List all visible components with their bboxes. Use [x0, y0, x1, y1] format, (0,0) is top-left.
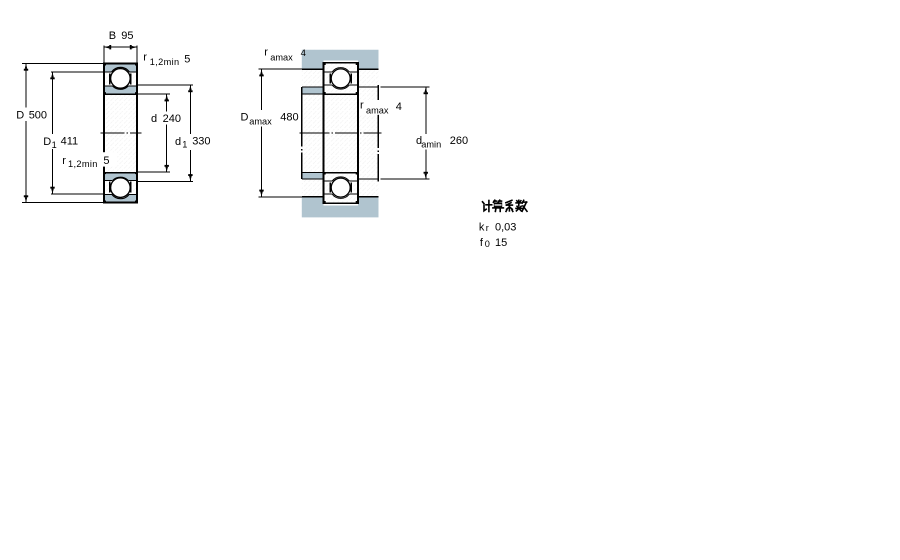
svg-text:amax: amax [270, 53, 293, 63]
svg-text:D: D [43, 136, 51, 148]
svg-text:r: r [264, 47, 268, 59]
svg-text:330: 330 [192, 136, 210, 148]
svg-text:amax: amax [249, 116, 272, 126]
svg-text:0: 0 [485, 239, 490, 249]
svg-text:B: B [109, 30, 116, 42]
svg-text:r: r [486, 223, 489, 233]
svg-text:d: d [151, 113, 157, 125]
svg-text:1,2min: 1,2min [68, 159, 98, 169]
svg-text:480: 480 [280, 111, 298, 123]
svg-text:r: r [360, 100, 364, 112]
svg-text:95: 95 [121, 30, 133, 42]
svg-text:5: 5 [103, 155, 109, 167]
svg-text:240: 240 [163, 113, 181, 125]
svg-text:D: D [16, 110, 24, 122]
svg-text:1: 1 [52, 140, 57, 150]
svg-text:4: 4 [396, 101, 402, 113]
svg-text:4: 4 [301, 48, 306, 59]
svg-text:1: 1 [182, 140, 187, 150]
svg-text:0,03: 0,03 [495, 222, 516, 234]
svg-text:k: k [479, 221, 485, 233]
svg-text:amin: amin [421, 140, 441, 150]
svg-text:amax: amax [366, 106, 389, 116]
svg-text:r: r [143, 52, 147, 64]
svg-text:260: 260 [450, 135, 468, 147]
svg-text:r: r [62, 155, 66, 167]
svg-text:411: 411 [61, 136, 79, 148]
svg-text:D: D [241, 112, 249, 124]
svg-text:500: 500 [29, 110, 47, 122]
svg-text:5: 5 [184, 53, 190, 65]
svg-text:1,2min: 1,2min [150, 57, 180, 67]
svg-text:d: d [175, 136, 181, 148]
svg-text:15: 15 [495, 237, 507, 249]
